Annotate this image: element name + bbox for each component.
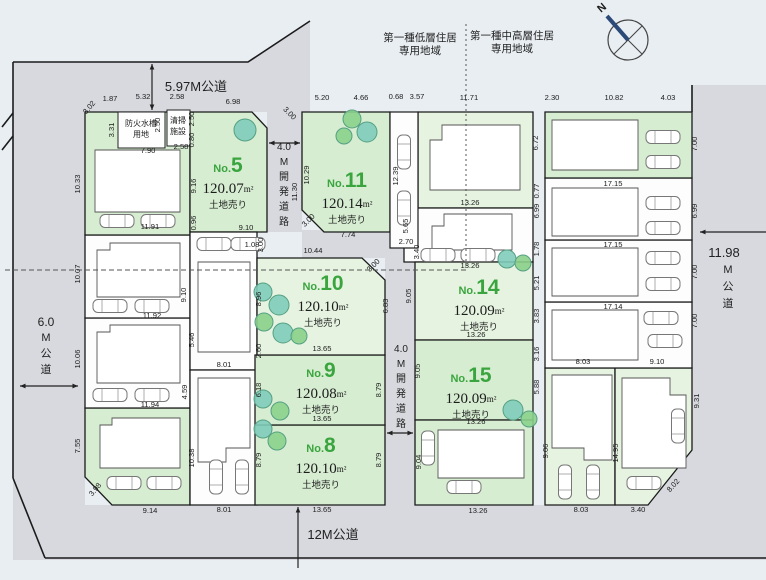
dimension-label: 11.91 bbox=[141, 222, 159, 231]
dimension-label: 13.65 bbox=[312, 505, 331, 514]
dimension-label: 9.10 bbox=[650, 357, 665, 366]
dimension-label: 6.99 bbox=[690, 204, 699, 219]
lot-sale-status: 土地売り bbox=[304, 317, 342, 329]
road-label-dev-upper-text: 路 bbox=[279, 215, 289, 228]
tree-icon bbox=[273, 323, 293, 343]
tree-icon bbox=[268, 432, 286, 450]
dimension-label: 8.79 bbox=[254, 453, 263, 468]
dimension-label: 7.55 bbox=[73, 439, 82, 454]
road-label-right-text: 道 bbox=[723, 296, 734, 310]
road-label-dev-lower-text: 4.0 bbox=[394, 344, 408, 355]
car-icon bbox=[559, 465, 572, 499]
road-label-dev-lower-text: 開 bbox=[396, 373, 406, 385]
car-icon bbox=[93, 389, 127, 402]
car-icon bbox=[398, 135, 411, 169]
road-label-bottom: 12M公道 bbox=[307, 527, 358, 542]
cleaning-facility-label: 清掃 bbox=[170, 115, 186, 125]
building-footprint bbox=[198, 262, 250, 352]
dimension-label: 2.50 bbox=[187, 112, 196, 127]
building-footprint bbox=[552, 188, 638, 236]
dimension-label: 13.65 bbox=[312, 344, 331, 353]
fire-water-tank-site-label: 用地 bbox=[133, 129, 149, 139]
car-icon bbox=[100, 215, 134, 228]
dimension-label: 9.14 bbox=[143, 506, 158, 515]
dimension-label: 9.16 bbox=[189, 179, 198, 194]
car-icon bbox=[646, 131, 680, 144]
dimension-label: 9.10 bbox=[179, 288, 188, 303]
dimension-label: 0.96 bbox=[189, 216, 198, 231]
dimension-label: 8.96 bbox=[254, 292, 263, 307]
car-icon bbox=[447, 481, 481, 494]
dimension-label: 13.26 bbox=[468, 506, 487, 515]
dimension-label: 10.82 bbox=[604, 93, 623, 102]
dimension-label: 11.71 bbox=[460, 93, 478, 102]
car-icon bbox=[646, 278, 680, 291]
dimension-label: 5.88 bbox=[532, 380, 541, 395]
car-icon bbox=[93, 300, 127, 313]
dimension-label: 17.15 bbox=[603, 240, 622, 249]
dimension-label: 13.26 bbox=[466, 330, 485, 339]
car-icon bbox=[646, 197, 680, 210]
dimension-label: 7.00 bbox=[690, 137, 699, 152]
road-label-left-text: 道 bbox=[41, 362, 52, 376]
dimension-label: 5.32 bbox=[136, 92, 151, 101]
dimension-label: 0.68 bbox=[389, 92, 404, 101]
dimension-label: 11.92 bbox=[143, 311, 161, 320]
site-plan-page: No.1No.2No.3No.4No.5120.07m²土地売りNo.6No.7… bbox=[0, 0, 766, 580]
lot-no-14: No.14120.09m²土地売り bbox=[415, 262, 533, 340]
road-label-right-text: 11.98 bbox=[708, 245, 740, 260]
dimension-label: 6.83 bbox=[381, 299, 390, 314]
dimension-label: 8.03 bbox=[574, 505, 589, 514]
zone-label-mid-high-rise: 第一種中高層住居 bbox=[470, 29, 554, 42]
tree-icon bbox=[498, 250, 516, 268]
tree-icon bbox=[503, 400, 523, 420]
dimension-label: 3.40 bbox=[412, 245, 421, 260]
dimension-label: 3.16 bbox=[532, 347, 541, 362]
dimension-label: 10.38 bbox=[187, 448, 196, 467]
dimension-label: 10.29 bbox=[302, 165, 311, 184]
dimension-label: 1.87 bbox=[103, 94, 118, 103]
dimension-label: 10.06 bbox=[73, 349, 82, 368]
road-label-dev-lower-text: M bbox=[397, 359, 405, 370]
car-icon bbox=[672, 409, 685, 443]
building-footprint bbox=[430, 125, 520, 190]
car-icon bbox=[421, 249, 455, 262]
building-footprint bbox=[97, 325, 180, 383]
dimension-label: 0.77 bbox=[532, 184, 541, 199]
dimension-label: 17.15 bbox=[603, 179, 622, 188]
dimension-label: 9.31 bbox=[692, 394, 701, 409]
building-footprint bbox=[552, 248, 638, 296]
building-footprint bbox=[552, 375, 612, 460]
building-footprint bbox=[552, 310, 638, 360]
road-surface bbox=[13, 505, 766, 560]
dimension-label: 10.44 bbox=[303, 246, 322, 255]
cleaning-facility-label: 施設 bbox=[170, 126, 186, 136]
dimension-label: 9.05 bbox=[404, 289, 413, 304]
dimension-label: 13.65 bbox=[312, 414, 331, 423]
dimension-label: 13.26 bbox=[460, 198, 479, 207]
road-label-dev-lower-text: 路 bbox=[396, 417, 406, 430]
building-footprint bbox=[95, 150, 180, 212]
dimension-label: 2.30 bbox=[545, 93, 560, 102]
dimension-label: 5.21 bbox=[532, 276, 541, 291]
dimension-label: 5.46 bbox=[187, 333, 196, 348]
road-label-dev-upper-text: M bbox=[280, 157, 288, 168]
dimension-label: 1.78 bbox=[532, 242, 541, 257]
road-label-right-text: 公 bbox=[723, 281, 734, 293]
dimension-label: 6.98 bbox=[226, 97, 241, 106]
car-icon bbox=[236, 460, 249, 494]
zone-label-mid-high-rise: 専用地域 bbox=[491, 42, 533, 55]
dimension-label: 9.05 bbox=[413, 364, 422, 379]
dimension-label: 9.10 bbox=[239, 223, 254, 232]
road-label-left-text: 公 bbox=[41, 348, 52, 360]
road-label-left-text: M bbox=[41, 332, 50, 344]
car-icon bbox=[644, 312, 678, 325]
dimension-label: 8.01 bbox=[217, 360, 232, 369]
dimension-label: 8.03 bbox=[576, 357, 591, 366]
car-icon bbox=[147, 477, 181, 490]
tree-icon bbox=[357, 122, 377, 142]
car-icon bbox=[587, 465, 600, 499]
tree-icon bbox=[521, 411, 537, 427]
dimension-label: 3.00 bbox=[256, 238, 265, 253]
tree-icon bbox=[234, 119, 256, 141]
dimension-label: 3.40 bbox=[631, 505, 646, 514]
dimension-label: 3.83 bbox=[532, 309, 541, 324]
car-icon bbox=[107, 477, 141, 490]
dimension-label: 2.60 bbox=[254, 344, 263, 359]
dimension-label: 3.57 bbox=[410, 92, 425, 101]
car-icon bbox=[646, 252, 680, 265]
dimension-label: 9.04 bbox=[414, 455, 423, 470]
car-icon bbox=[646, 156, 680, 169]
dimension-label: 9.06 bbox=[541, 444, 550, 459]
road-label-left-text: 6.0 bbox=[38, 315, 55, 329]
dimension-label: 14.95 bbox=[611, 443, 620, 462]
dimension-label: 10.33 bbox=[73, 174, 82, 193]
road-label-dev-lower-text: 発 bbox=[396, 387, 406, 400]
dimension-label: 7.90 bbox=[141, 146, 156, 155]
dimension-label: 8.79 bbox=[374, 383, 383, 398]
car-icon bbox=[648, 335, 682, 348]
tree-icon bbox=[336, 128, 352, 144]
car-icon bbox=[627, 477, 661, 490]
lot-sale-status: 土地売り bbox=[302, 479, 340, 491]
dimension-label: 7.74 bbox=[341, 230, 356, 239]
tree-icon bbox=[515, 255, 531, 271]
dimension-label: 10.07 bbox=[73, 264, 82, 283]
dimension-label: 4.66 bbox=[354, 93, 369, 102]
zone-label-low-rise: 専用地域 bbox=[399, 44, 441, 57]
building-footprint bbox=[438, 430, 524, 478]
lot-sale-status: 土地売り bbox=[328, 214, 366, 226]
tree-icon bbox=[269, 295, 289, 315]
dimension-label: 5.65 bbox=[401, 219, 410, 234]
building-footprint bbox=[100, 418, 180, 468]
dimension-label: 12.39 bbox=[391, 166, 400, 185]
dimension-label: 7.00 bbox=[690, 265, 699, 280]
lot-sale-status: 土地売り bbox=[209, 199, 247, 211]
dimension-label: 5.20 bbox=[315, 93, 330, 102]
dimension-label: 2.50 bbox=[153, 118, 162, 133]
car-icon bbox=[197, 238, 231, 251]
road-label-right-text: M bbox=[723, 264, 732, 276]
zone-label-low-rise: 第一種低層住居 bbox=[383, 31, 457, 44]
dimension-label: 11.30 bbox=[290, 183, 299, 201]
dimension-label: 11.94 bbox=[141, 400, 159, 409]
tree-icon bbox=[343, 110, 361, 128]
dimension-label: 4.03 bbox=[661, 93, 676, 102]
car-icon bbox=[422, 431, 435, 465]
dimension-label: 0.80 bbox=[187, 133, 196, 148]
dimension-label: 6.72 bbox=[531, 136, 540, 151]
road-label-dev-upper-text: 4.0 bbox=[277, 142, 291, 153]
dimension-label: 8.79 bbox=[374, 453, 383, 468]
car-icon bbox=[646, 222, 680, 235]
tree-icon bbox=[291, 328, 307, 344]
road-label-top: 5.97M公道 bbox=[165, 79, 227, 94]
dimension-label: 4.59 bbox=[180, 385, 189, 400]
dimension-label: 7.00 bbox=[690, 314, 699, 329]
dimension-label: 6.99 bbox=[532, 204, 541, 219]
dimension-label: 3.31 bbox=[107, 123, 116, 138]
subdivision-site-plan: No.1No.2No.3No.4No.5120.07m²土地売りNo.6No.7… bbox=[0, 0, 766, 580]
road-label-dev-lower-text: 道 bbox=[396, 402, 406, 415]
tree-icon bbox=[271, 402, 289, 420]
dimension-label: 8.01 bbox=[217, 505, 232, 514]
building-footprint bbox=[432, 214, 512, 250]
building-footprint bbox=[552, 120, 638, 170]
tree-icon bbox=[255, 313, 273, 331]
road-label-dev-upper-text: 開 bbox=[279, 171, 289, 183]
car-icon bbox=[210, 460, 223, 494]
dimension-label: 13.26 bbox=[460, 261, 479, 270]
dimension-label: 17.14 bbox=[603, 302, 622, 311]
tree-icon bbox=[254, 420, 272, 438]
dimension-label: 13.26 bbox=[466, 417, 485, 426]
dimension-label: 6.18 bbox=[254, 383, 263, 398]
road-surface bbox=[692, 85, 766, 560]
road-label-dev-upper-text: 道 bbox=[279, 200, 289, 213]
road-label-dev-upper-text: 発 bbox=[279, 185, 289, 198]
